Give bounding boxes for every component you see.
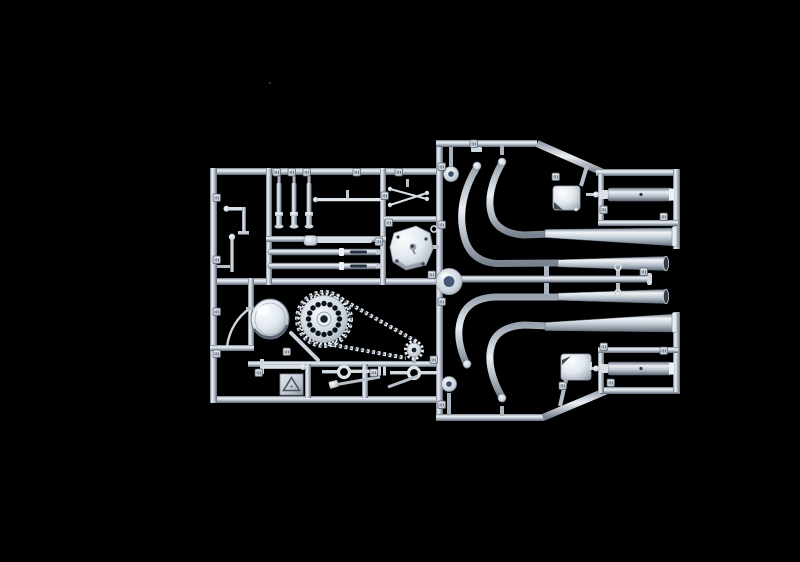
part-number-tag [283, 348, 291, 356]
disc-stub [447, 393, 451, 414]
cover-keyhole-center [411, 245, 414, 248]
disc-stub [449, 147, 453, 169]
hub-disc-center [448, 171, 454, 177]
part-number-tag [213, 308, 221, 316]
crank-leg [242, 207, 246, 233]
port-collar [463, 360, 471, 368]
ball-rod [230, 239, 233, 272]
pipe-stub [500, 406, 504, 416]
fork-tube [268, 262, 382, 270]
pipe-stub [500, 145, 504, 155]
part-number-tag [385, 219, 393, 227]
hanger-stem [616, 283, 620, 290]
part-number-tag [381, 192, 389, 200]
pedal-ball [300, 364, 306, 370]
runner-stub [305, 364, 311, 398]
steering-head-ring [436, 269, 462, 295]
runner-mid-rail [210, 278, 443, 285]
bolt-hole [396, 235, 399, 238]
cylinder-port-dot [639, 193, 642, 196]
rod-pin [346, 190, 349, 199]
port-collar [498, 394, 506, 402]
megaphone-mouth [663, 256, 668, 270]
dust-speck [291, 103, 293, 105]
clevis-prong [383, 367, 386, 376]
lever-arm [322, 370, 339, 373]
lever-arm [419, 371, 438, 374]
cylinder-port-dot [639, 367, 642, 370]
part-number-tag [660, 213, 668, 221]
part-number-tag [428, 271, 436, 279]
part-number-tag [438, 298, 446, 306]
ring-center [444, 276, 455, 287]
pipe-stub [544, 266, 549, 277]
cylinder-cap [599, 190, 608, 199]
fork-tube [268, 248, 382, 256]
elbow-boss [304, 236, 317, 246]
part-number-tag [640, 268, 648, 276]
cylinder-nipple [593, 192, 599, 198]
bolt-hole [424, 237, 427, 240]
pipe-stub [544, 283, 549, 294]
triangle-dot [291, 386, 293, 388]
part-number-tag [395, 169, 403, 177]
recycling-plate [280, 374, 303, 395]
part-number-tag [303, 169, 311, 177]
sprocket-hole [412, 348, 417, 353]
clevis-prong [378, 367, 381, 376]
link-ball [425, 191, 429, 195]
part-number-tag [438, 163, 446, 171]
crank-ball [224, 206, 230, 212]
part-number-tag [288, 169, 296, 177]
lever-arm [390, 371, 409, 374]
carburettor-body [561, 354, 591, 380]
runner-bottom-rail [210, 396, 443, 403]
part-number-tag [273, 169, 281, 177]
runner-bottom-right [600, 387, 680, 394]
part-number-tag [213, 350, 221, 358]
part-number-tag [552, 173, 560, 181]
part-number-tag [375, 238, 383, 246]
stay-stub [246, 307, 254, 310]
runner-left-edge [210, 168, 217, 403]
cylinder-cap [669, 189, 674, 201]
fork-slider-tubes [275, 175, 314, 229]
cylinder-nipple [593, 366, 599, 372]
runner-bottom-rail [436, 414, 544, 421]
sprue-photograph: Photograph of a silver-grey plastic mode… [40, 16, 800, 546]
sprue-photo-canvas: Photograph of a silver-grey plastic mode… [40, 16, 800, 546]
megaphone-end-ring [672, 313, 677, 333]
part-number-tag [559, 382, 567, 390]
megaphone-mouth [663, 289, 668, 303]
port-collar [473, 162, 481, 170]
part-number-tag [438, 401, 446, 409]
part-number-tag [607, 379, 615, 387]
rod-stub [217, 265, 230, 268]
part-number-tag [660, 347, 668, 355]
part-number-tag [430, 356, 438, 364]
pedal-rod [263, 365, 304, 369]
bolt-hole [395, 259, 398, 262]
part-number-tag [600, 206, 608, 214]
carb-nipple [574, 207, 578, 211]
headlamp-shell [251, 299, 289, 339]
bolt-hole [421, 262, 424, 265]
part-number-tag [438, 221, 446, 229]
rod-ball-end [313, 197, 318, 202]
part-number-tag [470, 140, 478, 148]
link-pin [406, 179, 409, 187]
part-number-tag [600, 343, 608, 351]
cylinder-cap [599, 364, 608, 373]
megaphone-end-ring [672, 227, 677, 247]
part-number-tag [213, 256, 221, 264]
runner-top-rail [210, 168, 443, 175]
sprocket-hub-hole [320, 315, 328, 323]
hanger-stem [616, 270, 620, 277]
part-number-tag [255, 369, 263, 377]
port-collar [498, 158, 506, 166]
elbow-rod [308, 239, 372, 243]
carb-hook [589, 362, 592, 370]
link-ball [425, 197, 429, 201]
part-number-tag [353, 169, 361, 177]
hub-disc-center [446, 381, 452, 387]
runner-subframe [598, 220, 678, 226]
crank-foot [238, 231, 249, 235]
link-ball [388, 187, 392, 191]
part-number-tag [213, 194, 221, 202]
dust-speck [269, 82, 271, 84]
part-number-tag [370, 369, 378, 377]
cylinder-cap [669, 363, 674, 375]
runner-top-right [596, 169, 680, 176]
link-ball [388, 203, 392, 207]
runner-top-rail [436, 140, 537, 147]
